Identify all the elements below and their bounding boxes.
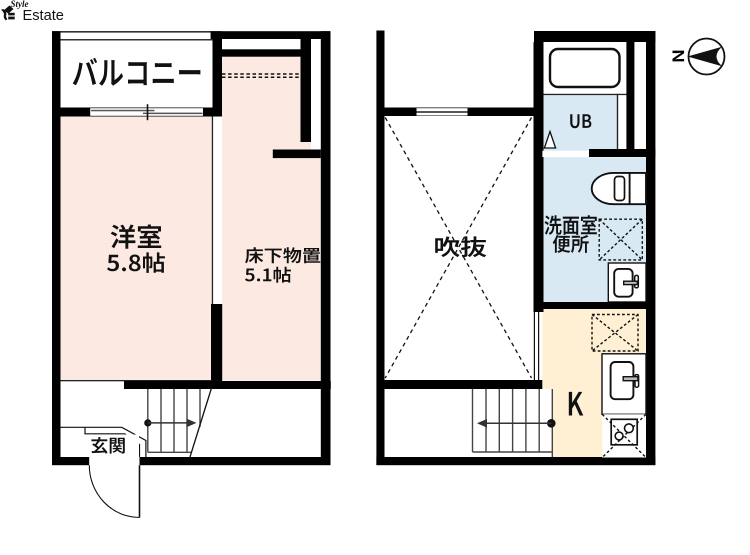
svg-text:Estate: Estate	[23, 8, 64, 24]
